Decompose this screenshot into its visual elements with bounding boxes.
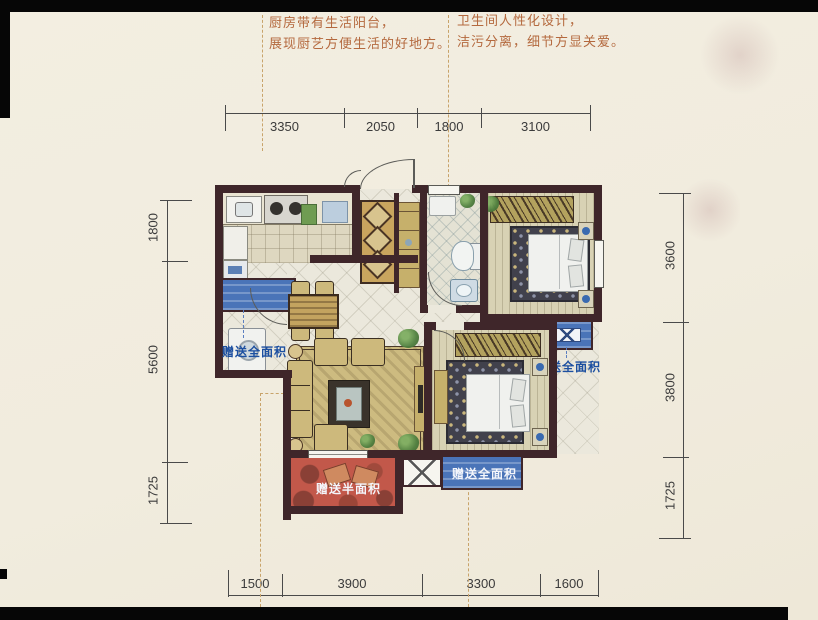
tv: [418, 385, 423, 413]
toilet-bowl: [451, 241, 474, 271]
kitchen-fridge: [223, 226, 248, 260]
dim-tick: [160, 200, 192, 201]
wall: [480, 314, 602, 322]
dim-line-right: [683, 193, 684, 538]
kitchen-note-line2: 展现厨艺方便生活的好地方。: [269, 33, 451, 54]
armchair: [351, 338, 385, 366]
dim-tick: [598, 570, 599, 597]
armchair: [314, 338, 348, 366]
dim-line-top: [225, 113, 590, 114]
bedroom2-wardrobe: [455, 333, 541, 357]
pillow: [568, 264, 584, 287]
bath-note: 卫生间人性化设计， 洁污分离，细节方显关爱。: [457, 10, 625, 52]
pillow: [568, 238, 585, 262]
window-line: [309, 454, 367, 455]
entry-door-arc: [360, 159, 414, 189]
nightstand: [578, 290, 594, 308]
bedroom1-bed: [528, 234, 588, 292]
dim-tick: [663, 322, 689, 323]
scan-edge-top: [0, 0, 818, 12]
dim-right-3: 1725: [663, 476, 678, 516]
entry-closet: [398, 202, 420, 288]
bath-note-leader: [448, 15, 449, 207]
dim-top-3: 1800: [417, 119, 481, 134]
dim-bottom-1: 1500: [228, 576, 282, 591]
coffee-table: [328, 380, 370, 428]
kitchen-note: 厨房带有生活阳台， 展现厨艺方便生活的好地方。: [269, 12, 451, 54]
wall: [283, 370, 291, 520]
dining-table: [288, 294, 339, 329]
kitchen-tray: [322, 201, 348, 223]
nightstand-lamp: [536, 363, 544, 371]
dim-tick: [659, 193, 691, 194]
dim-tick: [659, 538, 691, 539]
scan-smudge-2: [680, 175, 740, 245]
wall: [283, 506, 403, 514]
dim-bottom-4: 1600: [540, 576, 598, 591]
dim-top-4: 3100: [481, 119, 590, 134]
bath-note-line1: 卫生间人性化设计，: [457, 10, 625, 31]
leader-bonus-kitchen: [243, 310, 244, 338]
scan-edge-left: [0, 0, 10, 118]
sink-basin: [235, 202, 253, 217]
pillow: [510, 404, 526, 427]
leader-half-area-v: [260, 393, 261, 607]
blanket-line: [467, 375, 500, 429]
dim-left-1: 1800: [146, 208, 161, 248]
wall: [549, 314, 557, 458]
nightstand: [532, 428, 548, 446]
wall: [310, 255, 418, 263]
nightstand-lamp: [536, 433, 544, 441]
bathroom-window: [428, 185, 460, 195]
dim-left-2: 5600: [146, 340, 161, 380]
sofa-seam: [288, 385, 310, 386]
sofa-seam: [288, 410, 310, 411]
blanket-line: [529, 235, 560, 289]
dim-line-bottom: [228, 595, 598, 596]
dim-tick: [162, 462, 188, 463]
table-decor: [344, 399, 352, 407]
entry-rug: [360, 200, 397, 284]
nightstand: [532, 358, 548, 376]
scan-mark-left: [0, 569, 7, 579]
wall: [420, 185, 427, 312]
dim-line-left: [167, 200, 168, 523]
bath-note-line2: 洁污分离，细节方显关爱。: [457, 31, 625, 52]
kitchen-board: [301, 204, 317, 225]
scan-edge-bottom: [0, 607, 788, 620]
leader-bonus-bedroom1: [566, 347, 567, 358]
dim-tick: [162, 261, 188, 262]
bay-x-box: [553, 328, 581, 342]
entry-door-leaf: [413, 159, 415, 188]
bedroom2-door-gap: [436, 322, 464, 330]
entry-door-arc-small: [344, 170, 361, 187]
kitchen-sink: [226, 196, 262, 223]
dim-tick: [663, 457, 689, 458]
flower-box: [402, 458, 442, 487]
nightstand-lamp: [582, 295, 590, 303]
bonus-label-kitchen: 赠送全面积: [222, 343, 287, 360]
bedroom1-window: [594, 240, 604, 288]
wall: [394, 193, 399, 293]
pillow: [510, 378, 527, 402]
leader-half-area-h: [260, 393, 284, 394]
shower-tray: [429, 196, 456, 216]
dim-tick: [590, 105, 591, 131]
bedroom1-wardrobe: [490, 196, 574, 223]
scan-smudge-1: [700, 15, 780, 95]
burner: [270, 202, 283, 215]
bedroom2-bay-window: 赠送全面积: [441, 455, 523, 490]
bedroom2-bed: [466, 374, 530, 432]
dim-bottom-3: 3300: [422, 576, 540, 591]
bonus-label-half: 赠送半面积: [316, 480, 381, 497]
dim-top-2: 2050: [344, 119, 417, 134]
kitchen-note-line1: 厨房带有生活阳台，: [269, 12, 451, 33]
dim-right-2: 3800: [663, 368, 678, 408]
side-table: [288, 344, 303, 359]
dim-bottom-2: 3900: [282, 576, 422, 591]
bathroom-door-gap: [428, 305, 456, 313]
nightstand: [578, 222, 594, 240]
wall: [480, 185, 488, 314]
dim-tick: [160, 523, 192, 524]
wall: [352, 185, 360, 263]
bedroom2-console: [434, 370, 448, 424]
wall: [215, 185, 358, 193]
cabinet-accent: [228, 266, 242, 274]
leader-bonus-bottom: [468, 487, 469, 607]
dim-right-1: 3600: [663, 236, 678, 276]
closet-knob: [405, 239, 412, 246]
nightstand-lamp: [582, 227, 590, 235]
armchair: [314, 424, 348, 452]
wall: [215, 370, 292, 378]
floorplan-sheet: 厨房带有生活阳台， 展现厨艺方便生活的好地方。 卫生间人性化设计， 洁污分离，细…: [0, 0, 818, 620]
bonus-label-bedroom2: 赠送全面积: [452, 465, 517, 482]
dim-top-1: 3350: [225, 119, 344, 134]
wall: [424, 322, 432, 458]
dim-left-3: 1725: [146, 471, 161, 511]
